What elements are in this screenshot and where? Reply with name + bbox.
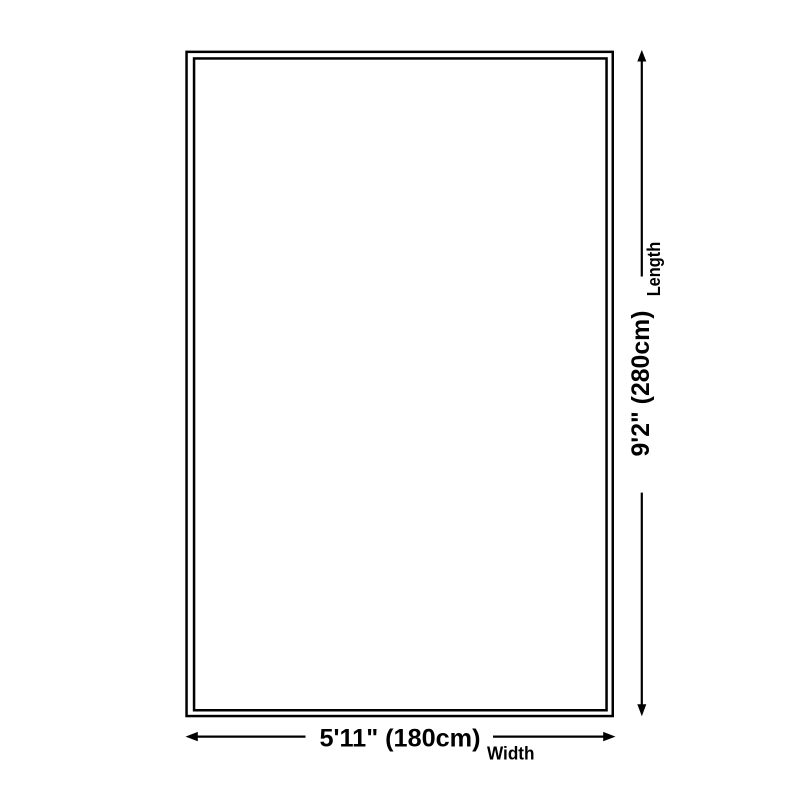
svg-text:Length: Length — [644, 242, 664, 297]
svg-text:5'11" (180cm): 5'11" (180cm) — [320, 724, 481, 752]
svg-text:Width: Width — [487, 743, 535, 763]
svg-text:9'2" (280cm): 9'2" (280cm) — [627, 311, 655, 457]
